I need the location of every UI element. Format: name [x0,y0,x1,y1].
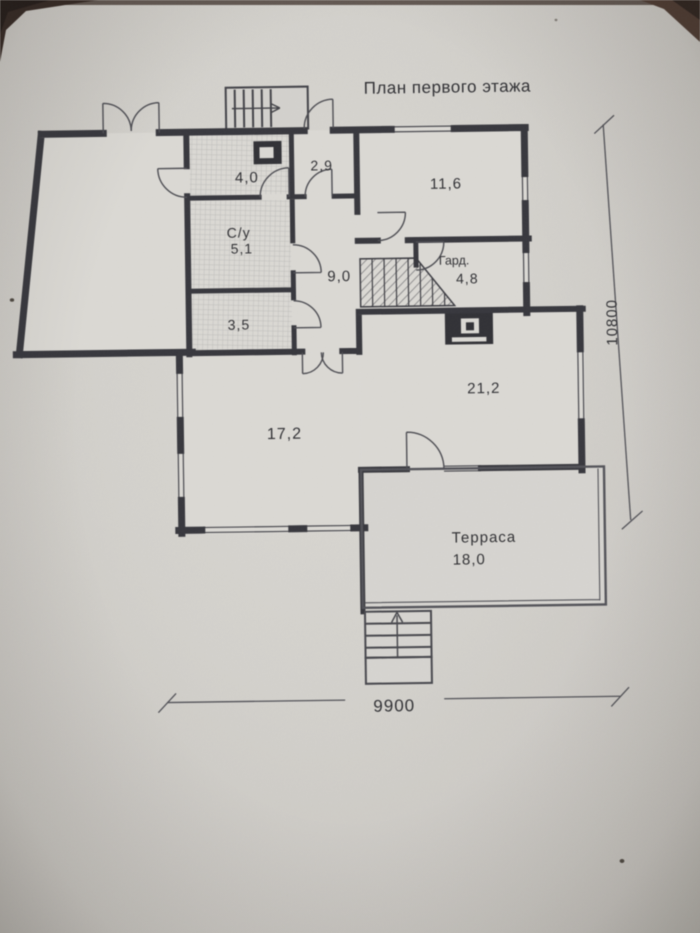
floor-plan-photo: План первого этажа 4,0 2,9 11,6 С/у 5,1 … [0,0,700,933]
floor-plan-drawing: План первого этажа 4,0 2,9 11,6 С/у 5,1 … [0,0,700,933]
photo-grain [0,0,700,933]
